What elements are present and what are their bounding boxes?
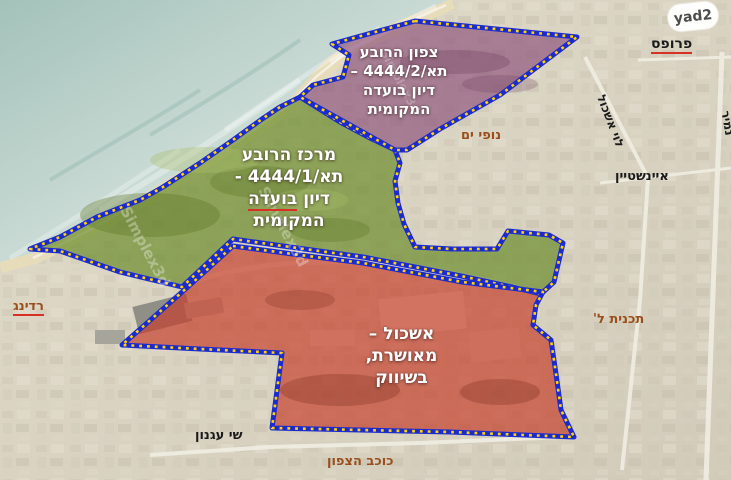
labels-layer: צפון הרובע תא/4444/2 – דיון בועדה המקומי… xyxy=(0,0,731,480)
label-profes-text: פרופס xyxy=(651,36,692,54)
purple-label-line: המקומית xyxy=(325,100,473,119)
label-shai-agnon: שי עגנון xyxy=(195,428,243,443)
purple-label-line: צפון הרובע xyxy=(325,43,473,62)
green-label-word-underlined: בועדה xyxy=(248,189,297,211)
red-label-line: מאושרת, xyxy=(329,345,474,367)
label-levi-eshkol: לוי אשכול xyxy=(594,93,627,149)
label-reading: רדינג xyxy=(13,299,44,314)
map-stage: Simplex3d Simplex3d Simplex3d צפון הרובע… xyxy=(0,0,731,480)
label-tochnit-l: תכנית ל' xyxy=(593,312,644,327)
label-kochav-hatzafon: כוכב הצפון xyxy=(327,454,394,469)
green-label-line: המקומית xyxy=(205,210,373,232)
label-nofei-yam: נופי ים xyxy=(461,128,501,143)
red-region-label: אשכול – מאושרת, בשיווק xyxy=(329,323,474,389)
green-label-line: דיון בועדה xyxy=(205,188,373,210)
yad2-logo-text: yad2 xyxy=(673,7,713,27)
red-label-line: בשיווק xyxy=(329,367,474,389)
green-label-line: תא/4444/1 - xyxy=(205,166,373,188)
purple-label-line: תא/4444/2 – xyxy=(325,62,473,81)
purple-region-label: צפון הרובע תא/4444/2 – דיון בועדה המקומי… xyxy=(325,43,473,119)
red-label-line: אשכול – xyxy=(329,323,474,345)
purple-label-line: דיון בועדה xyxy=(325,81,473,100)
label-namir: נמיר xyxy=(718,110,731,137)
label-profes: פרופס xyxy=(651,36,692,52)
green-label-line: מרכז הרובע xyxy=(205,144,373,166)
label-reading-text: רדינג xyxy=(13,299,44,316)
yad2-logo: yad2 xyxy=(667,0,720,32)
label-einstein: איינשטיין xyxy=(615,169,669,184)
green-region-label: מרכז הרובע תא/4444/1 - דיון בועדה המקומי… xyxy=(205,144,373,232)
green-label-word: דיון xyxy=(303,189,330,209)
